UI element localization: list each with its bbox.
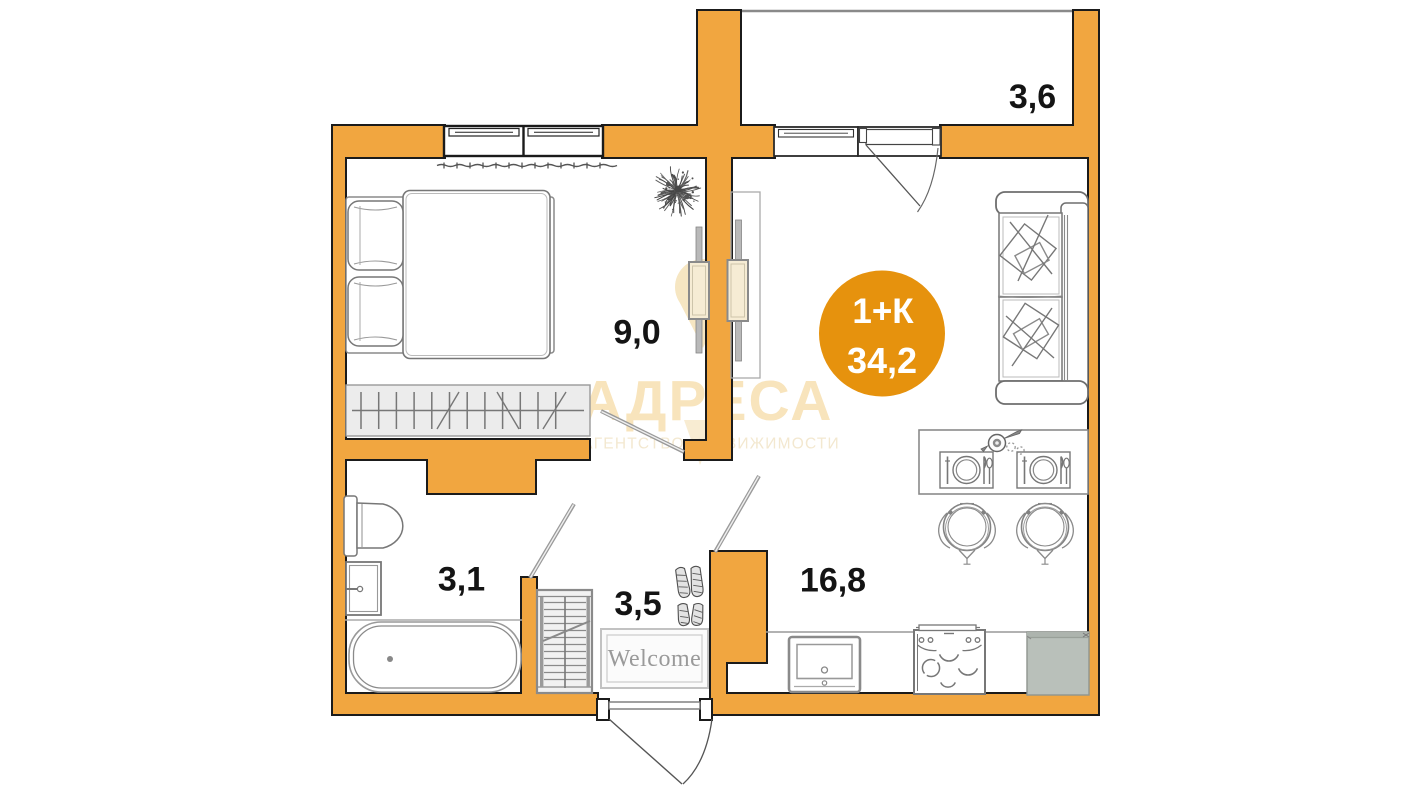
svg-text:9,0: 9,0 bbox=[613, 314, 660, 352]
svg-text:3,1: 3,1 bbox=[438, 561, 485, 599]
svg-text:Welcome: Welcome bbox=[608, 646, 702, 672]
svg-text:34,2: 34,2 bbox=[847, 340, 917, 381]
svg-text:3,5: 3,5 bbox=[614, 585, 661, 623]
svg-text:1+К: 1+К bbox=[852, 292, 914, 331]
svg-text:3,6: 3,6 bbox=[1009, 78, 1056, 116]
svg-text:16,8: 16,8 bbox=[800, 562, 866, 600]
